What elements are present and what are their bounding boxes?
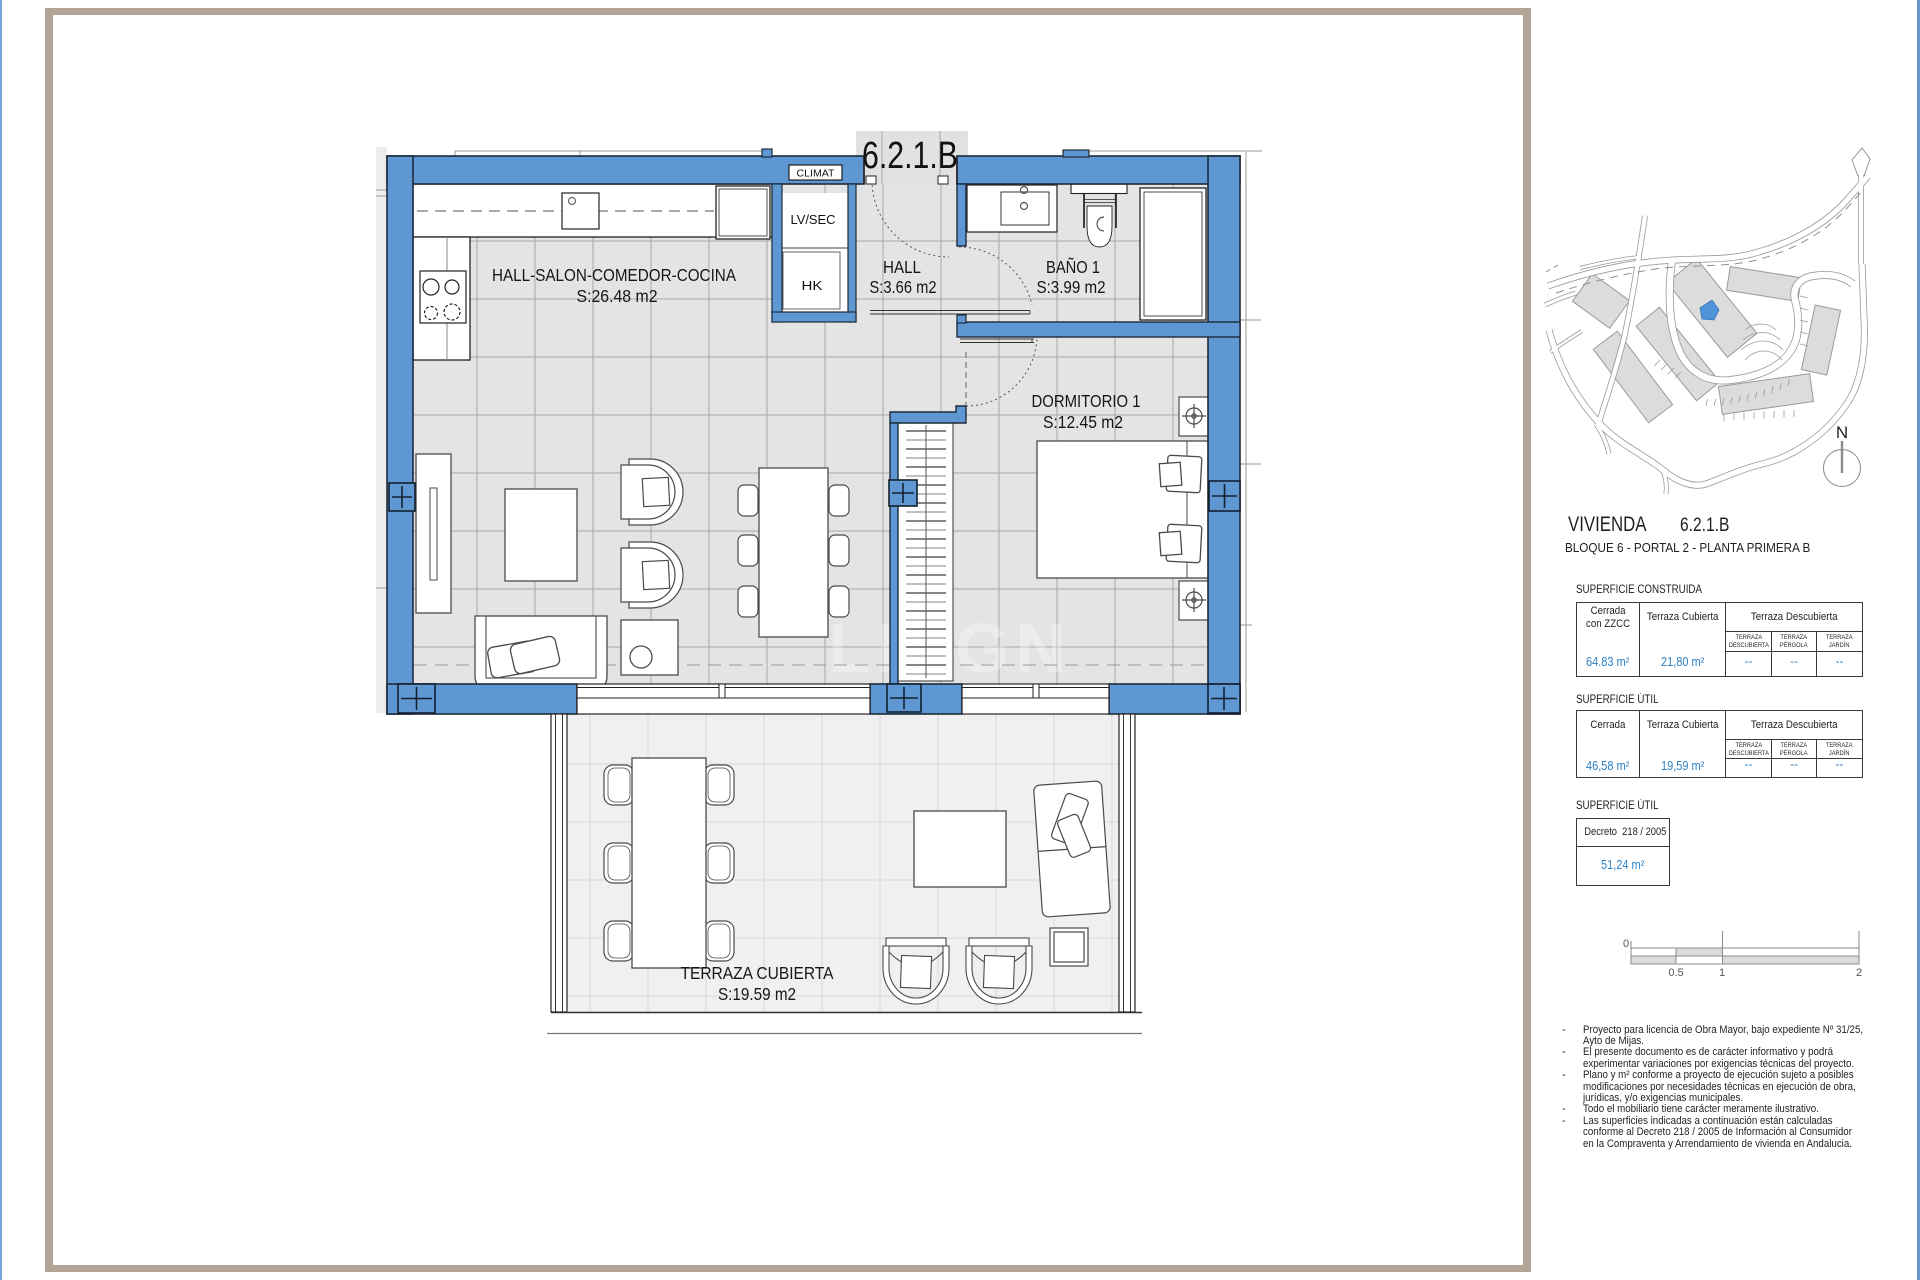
svg-text:CLIMAT: CLIMAT (797, 169, 835, 180)
svg-text:HALL-SALON-COMEDOR-COCINA: HALL-SALON-COMEDOR-COCINA (492, 265, 736, 285)
svg-text:DORMITORIO 1: DORMITORIO 1 (1032, 391, 1141, 411)
svg-text:S:12.45 m2: S:12.45 m2 (1043, 412, 1123, 432)
svg-text:S:19.59 m2: S:19.59 m2 (718, 984, 796, 1004)
svg-text:1: 1 (1719, 967, 1725, 979)
svg-text:6.2.1.B: 6.2.1.B (862, 135, 958, 177)
svg-text:0.5: 0.5 (1668, 967, 1683, 979)
svg-text:TERRAZA CUBIERTA: TERRAZA CUBIERTA (681, 963, 834, 983)
svg-text:S:3.66 m2: S:3.66 m2 (870, 277, 937, 297)
svg-text:LV/SEC: LV/SEC (791, 213, 836, 227)
svg-text:HALL: HALL (883, 257, 921, 277)
svg-text:S:26.48 m2: S:26.48 m2 (577, 286, 658, 306)
svg-text:HK: HK (802, 279, 824, 293)
svg-text:2: 2 (1856, 967, 1862, 979)
svg-text:BAÑO 1: BAÑO 1 (1046, 256, 1100, 277)
svg-text:S:3.99 m2: S:3.99 m2 (1037, 277, 1106, 297)
svg-text:0: 0 (1623, 938, 1629, 950)
svg-text:N: N (1836, 423, 1848, 442)
